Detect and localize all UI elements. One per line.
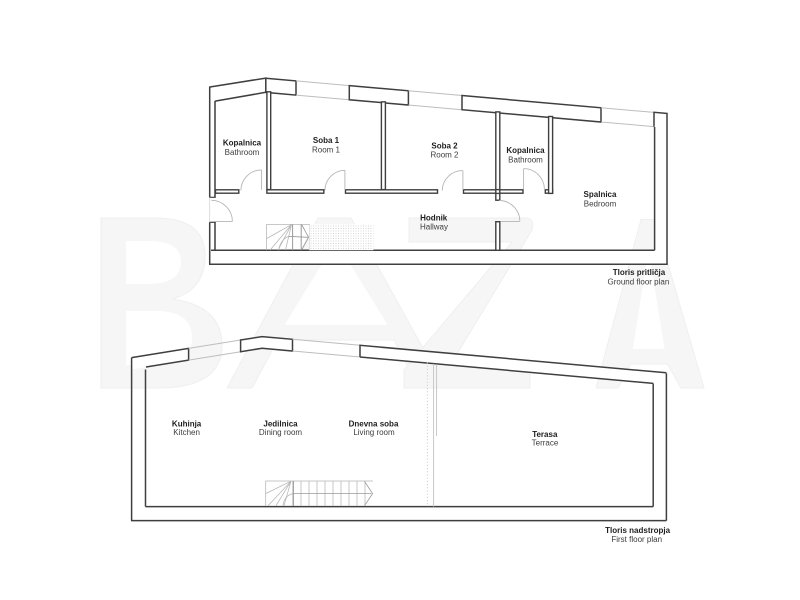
svg-text:Room 2: Room 2: [430, 151, 459, 160]
svg-text:Bathroom: Bathroom: [508, 155, 543, 164]
svg-text:First floor plan: First floor plan: [611, 535, 662, 544]
svg-text:Bedroom: Bedroom: [584, 199, 617, 208]
svg-text:Hallway: Hallway: [420, 223, 448, 232]
svg-text:Dining room: Dining room: [259, 428, 302, 437]
svg-text:Kopalnica: Kopalnica: [223, 138, 262, 147]
svg-text:Dnevna soba: Dnevna soba: [349, 419, 399, 428]
svg-text:Room 1: Room 1: [312, 146, 341, 155]
svg-text:Kopalnica: Kopalnica: [506, 146, 545, 155]
svg-text:Terasa: Terasa: [532, 430, 558, 439]
svg-text:Spalnica: Spalnica: [584, 190, 617, 199]
svg-text:Kitchen: Kitchen: [173, 428, 200, 437]
svg-text:Soba 2: Soba 2: [431, 142, 458, 151]
svg-text:Terrace: Terrace: [532, 439, 559, 448]
svg-text:Kuhinja: Kuhinja: [172, 419, 202, 428]
svg-text:Tloris nadstropja: Tloris nadstropja: [605, 526, 670, 535]
svg-text:Jedilnica: Jedilnica: [263, 419, 298, 428]
svg-text:Soba 1: Soba 1: [313, 136, 340, 145]
svg-text:Tloris pritličja: Tloris pritličja: [613, 268, 666, 277]
svg-text:Hodnik: Hodnik: [420, 214, 448, 223]
svg-text:Bathroom: Bathroom: [225, 148, 260, 157]
svg-text:Living room: Living room: [353, 428, 395, 437]
svg-text:Ground floor plan: Ground floor plan: [607, 278, 669, 287]
